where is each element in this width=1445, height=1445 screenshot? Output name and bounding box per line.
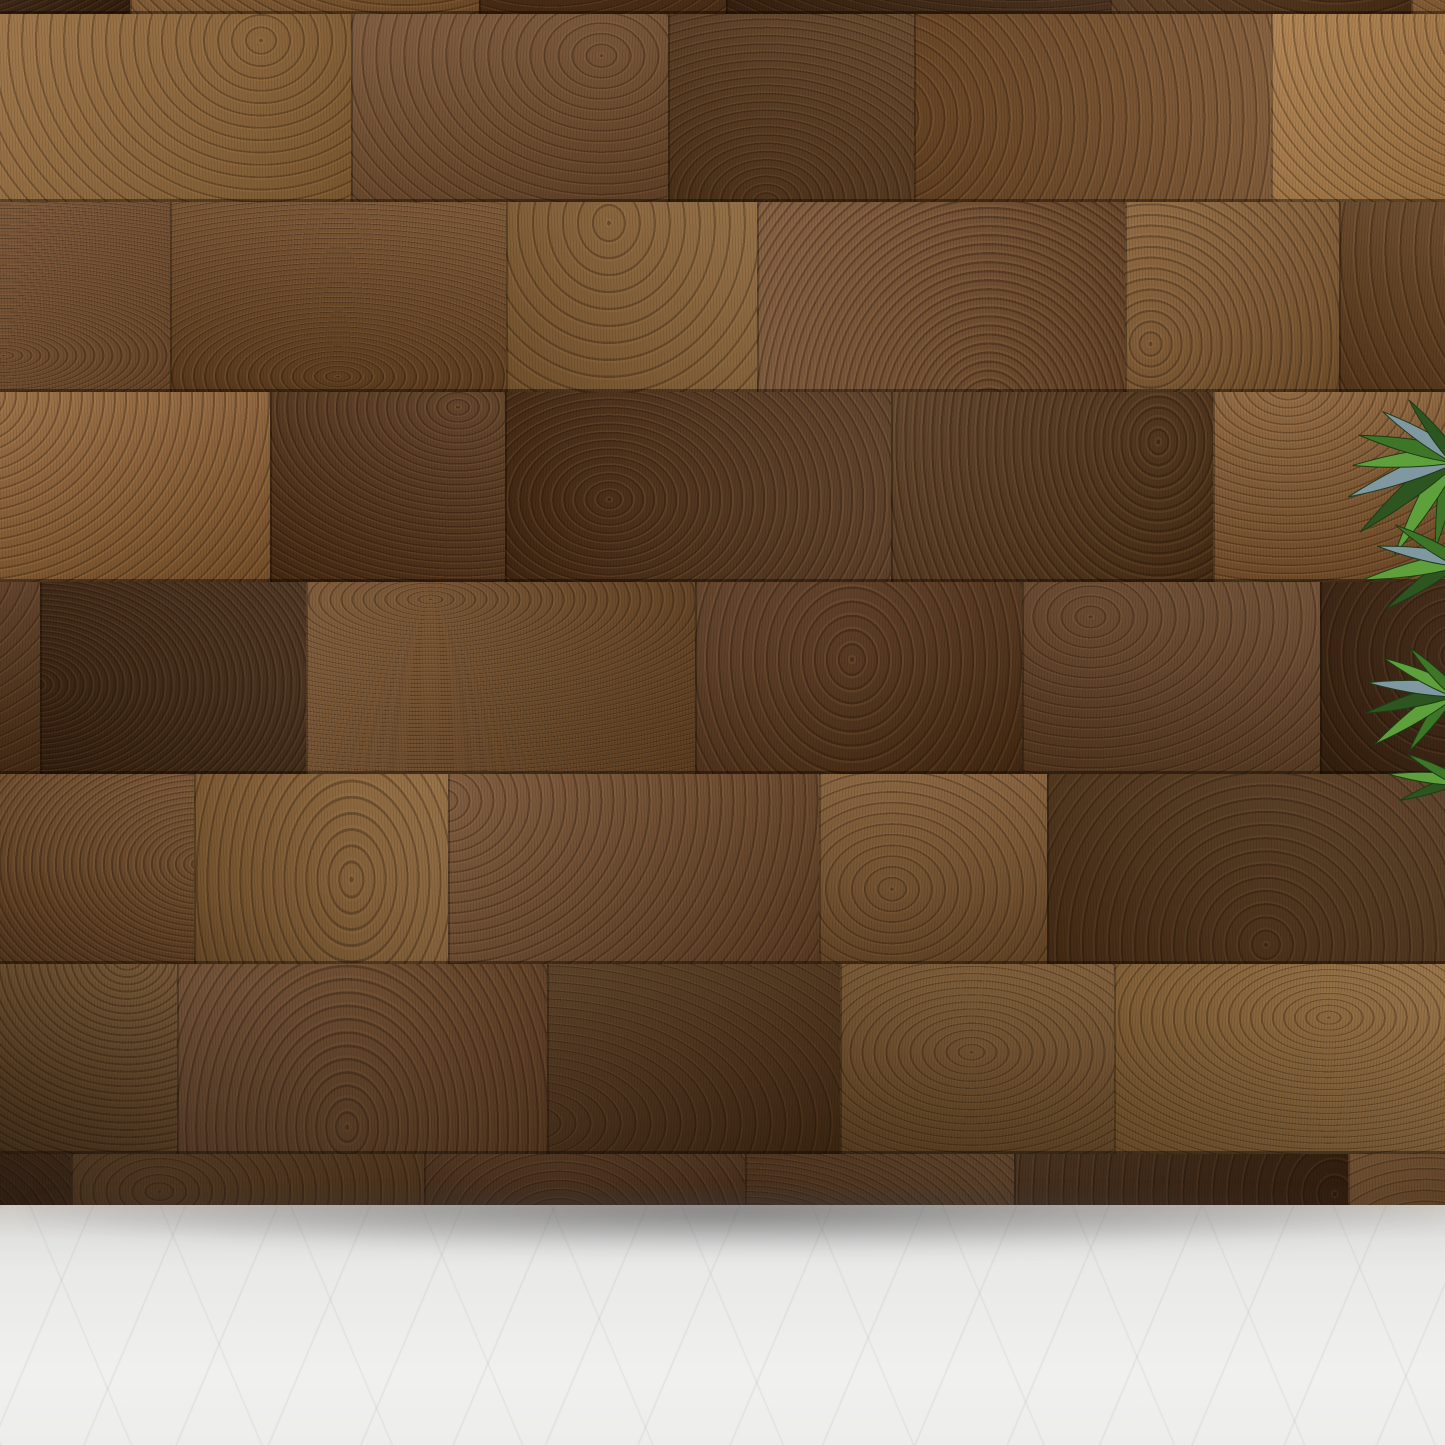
scene: 80CM 120CM 70CM 100CM 60CM 80CM 40CM 60C…: [0, 0, 1445, 1445]
wall-shading: [0, 0, 1445, 1208]
sofa-shadow: [26, 1194, 1434, 1252]
wood-wall: [0, 0, 1445, 1208]
